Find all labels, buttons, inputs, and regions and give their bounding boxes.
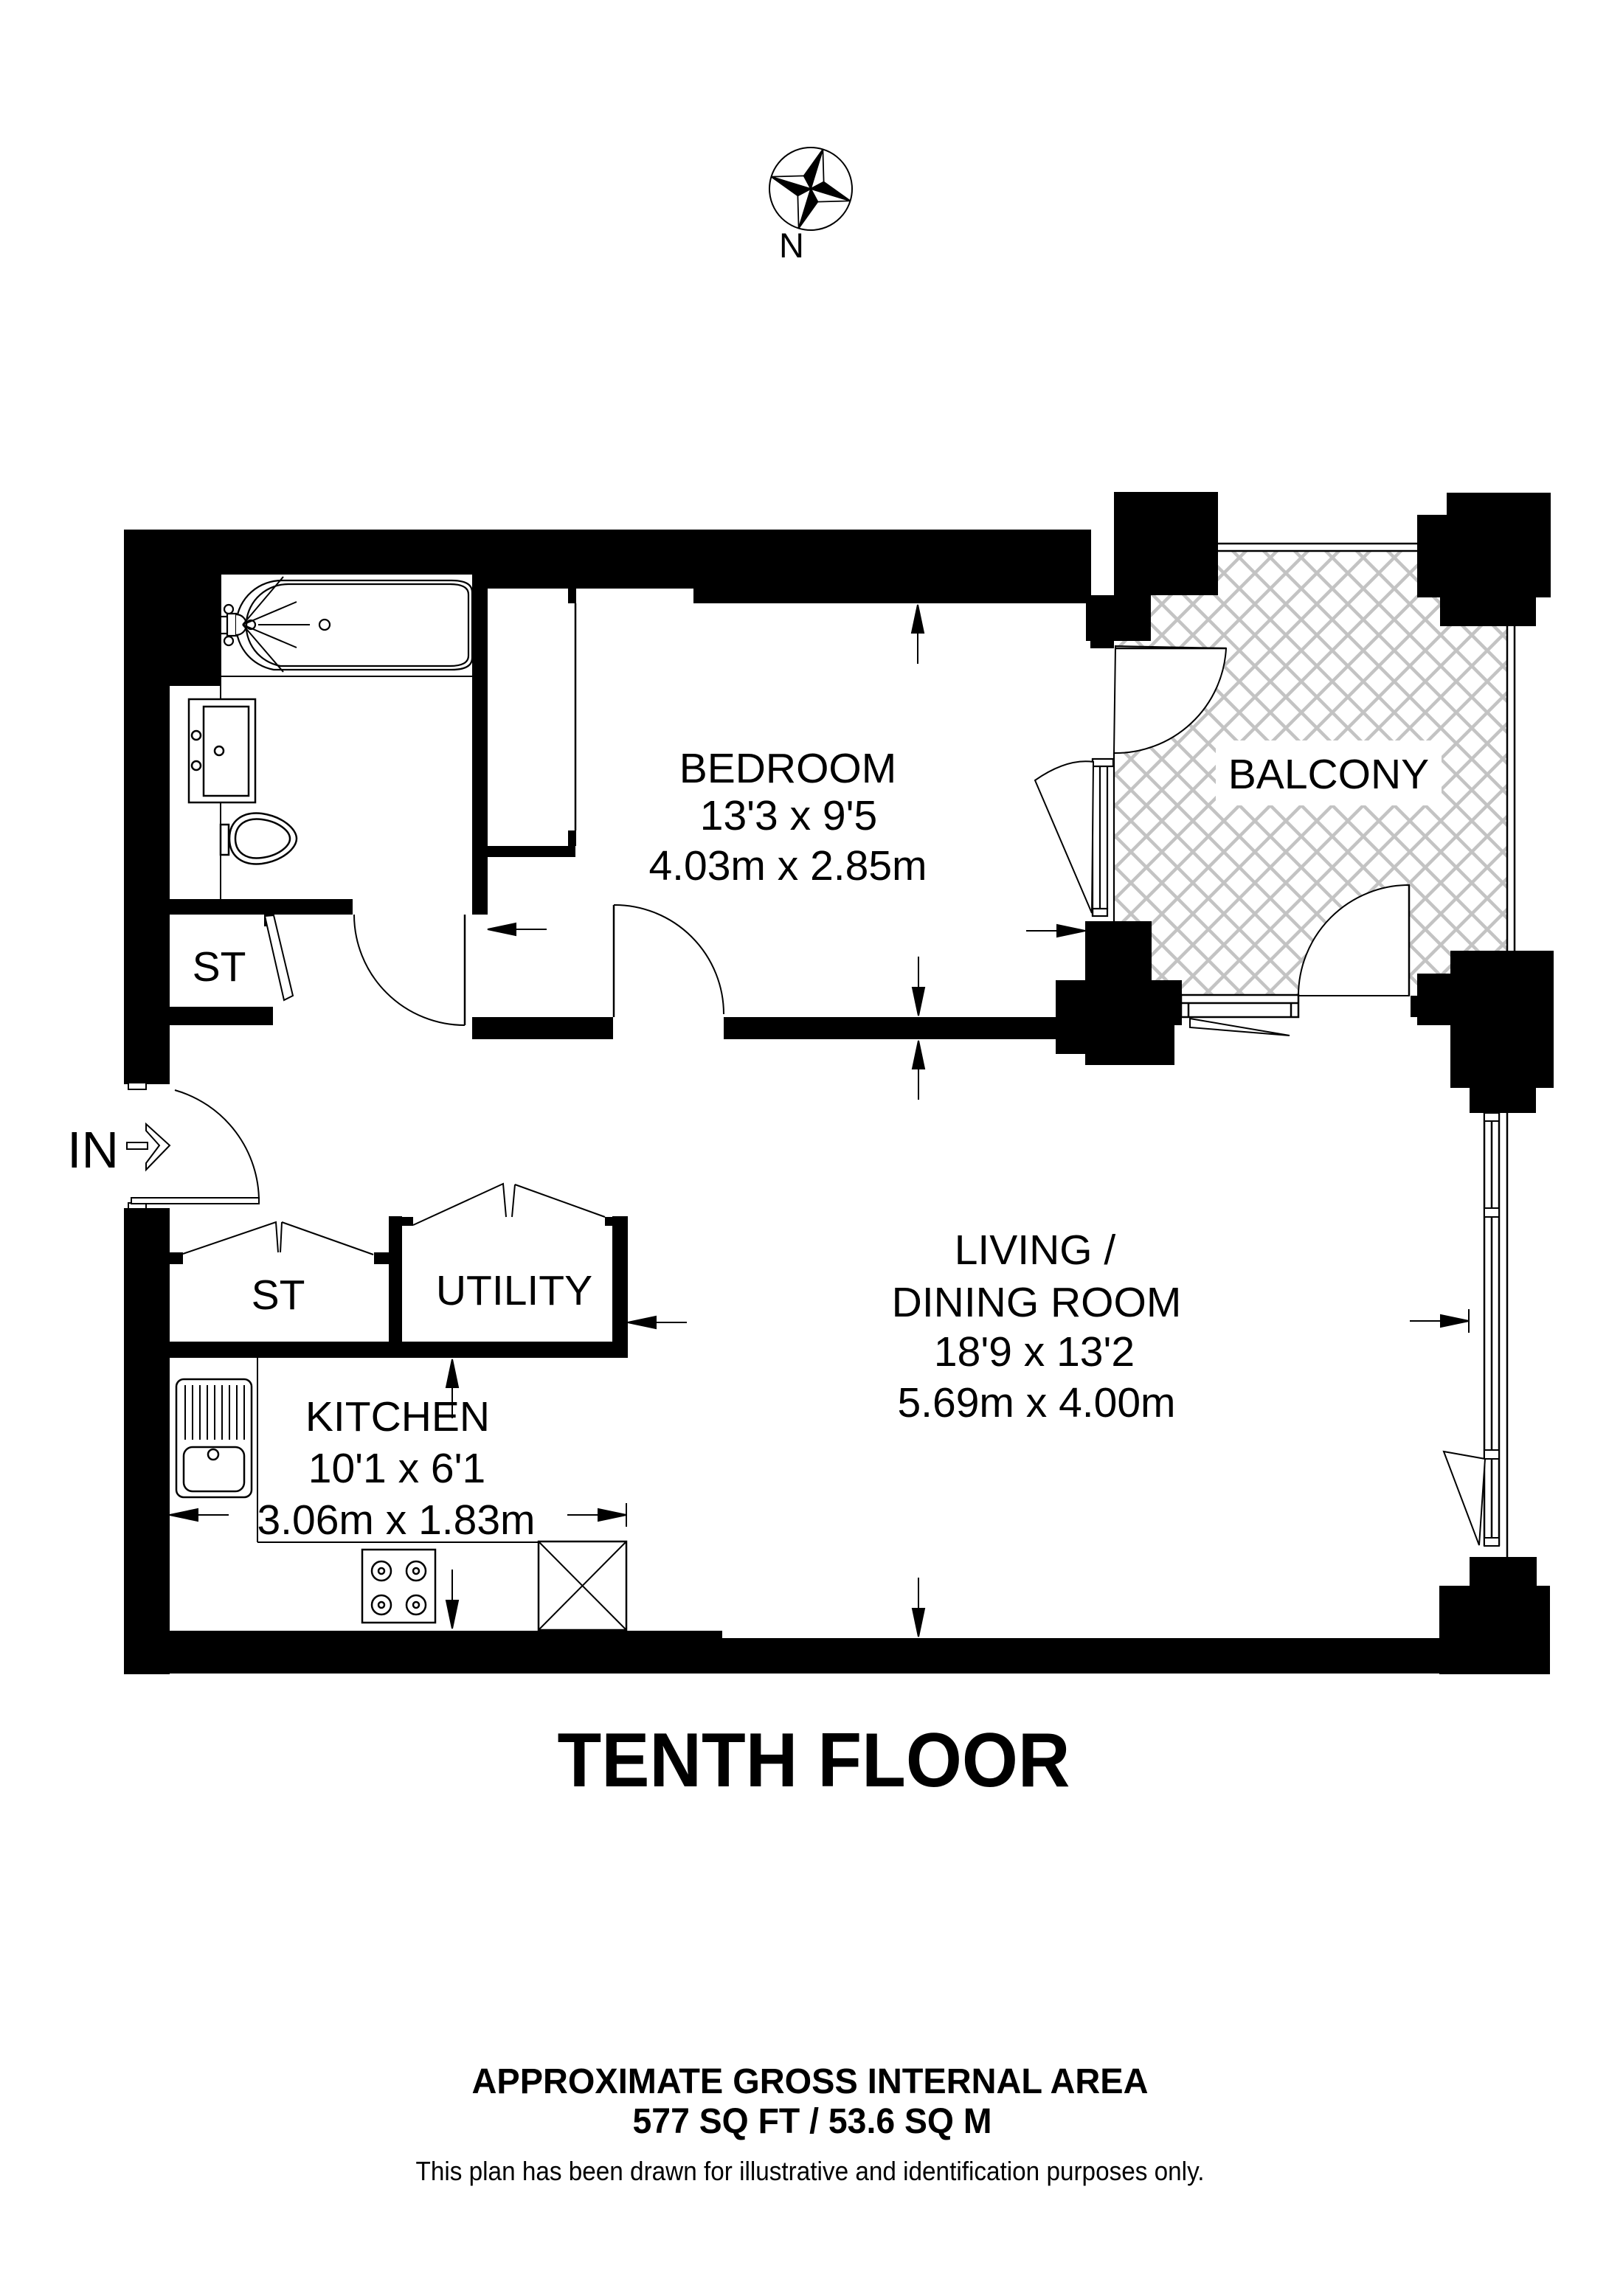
svg-text:TENTH FLOOR: TENTH FLOOR — [558, 1718, 1070, 1803]
svg-text:10'1 x 6'1: 10'1 x 6'1 — [308, 1445, 485, 1492]
svg-text:BEDROOM: BEDROOM — [679, 745, 897, 792]
svg-text:UTILITY: UTILITY — [436, 1267, 592, 1314]
svg-text:DINING ROOM: DINING ROOM — [892, 1279, 1182, 1326]
svg-text:IN: IN — [67, 1121, 119, 1179]
svg-text:BALCONY: BALCONY — [1228, 751, 1429, 798]
svg-text:5.69m x 4.00m: 5.69m x 4.00m — [897, 1379, 1175, 1426]
svg-text:577 SQ FT / 53.6 SQ M: 577 SQ FT / 53.6 SQ M — [633, 2102, 992, 2141]
svg-text:4.03m x 2.85m: 4.03m x 2.85m — [648, 842, 927, 889]
svg-text:LIVING /: LIVING / — [955, 1227, 1116, 1274]
svg-text:This plan has been drawn for i: This plan has been drawn for illustrativ… — [416, 2156, 1205, 2186]
svg-text:N: N — [779, 226, 804, 265]
svg-text:3.06m x 1.83m: 3.06m x 1.83m — [257, 1496, 535, 1544]
svg-text:18'9 x 13'2: 18'9 x 13'2 — [934, 1328, 1135, 1376]
svg-text:APPROXIMATE GROSS INTERNAL ARE: APPROXIMATE GROSS INTERNAL AREA — [472, 2062, 1149, 2101]
svg-text:ST: ST — [193, 943, 246, 991]
svg-text:KITCHEN: KITCHEN — [305, 1393, 490, 1440]
svg-text:ST: ST — [252, 1272, 305, 1319]
svg-text:13'3 x 9'5: 13'3 x 9'5 — [700, 792, 877, 839]
